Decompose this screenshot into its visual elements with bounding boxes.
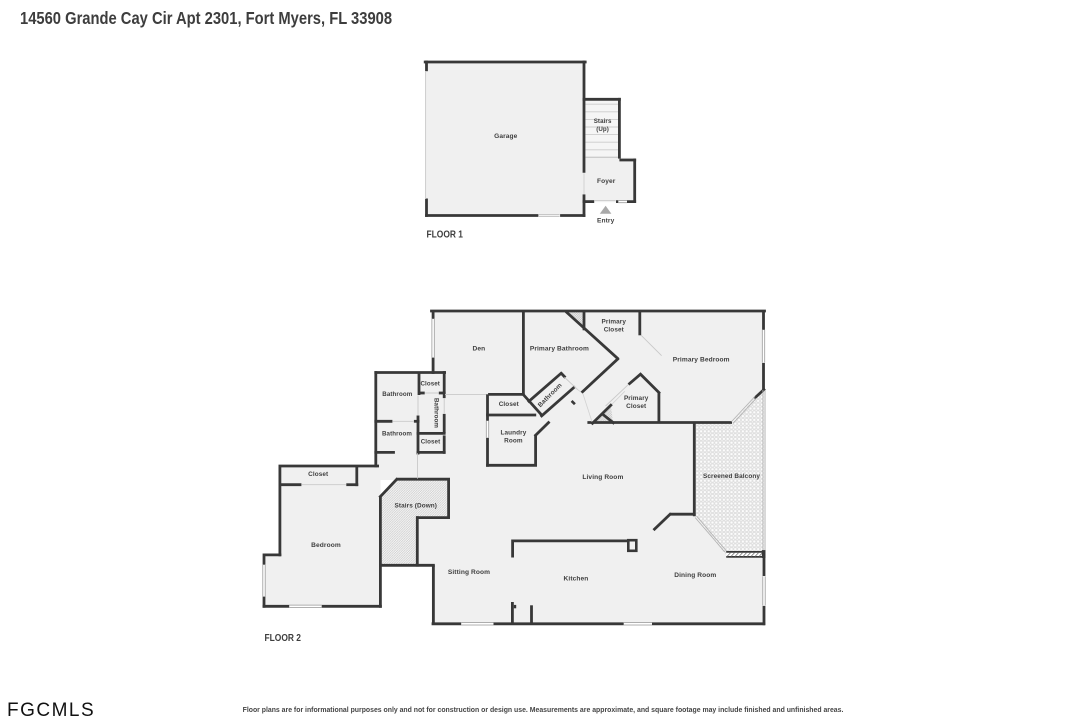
svg-text:Stairs (Down): Stairs (Down): [395, 503, 438, 510]
svg-text:Screened Balcony: Screened Balcony: [703, 473, 760, 480]
svg-text:Closet: Closet: [421, 439, 441, 446]
svg-text:Living Room: Living Room: [582, 474, 623, 481]
svg-text:Closet: Closet: [420, 380, 440, 387]
svg-text:Primary: Primary: [602, 319, 627, 326]
svg-text:FLOOR 2: FLOOR 2: [265, 633, 302, 644]
svg-text:FLOOR 1: FLOOR 1: [427, 230, 464, 241]
svg-text:Bathroom: Bathroom: [382, 391, 412, 398]
svg-text:Closet: Closet: [604, 327, 625, 334]
svg-text:Room: Room: [504, 438, 523, 445]
svg-text:(Up): (Up): [596, 126, 609, 133]
svg-text:Entry: Entry: [597, 218, 615, 225]
svg-text:Bathroom: Bathroom: [432, 398, 439, 428]
svg-text:Primary Bedroom: Primary Bedroom: [673, 356, 730, 363]
svg-text:Closet: Closet: [308, 471, 329, 478]
svg-text:Den: Den: [473, 345, 486, 352]
svg-text:Kitchen: Kitchen: [564, 575, 589, 582]
svg-text:Stairs: Stairs: [594, 118, 612, 125]
svg-text:Bathroom: Bathroom: [382, 431, 412, 438]
svg-text:Bedroom: Bedroom: [311, 542, 341, 549]
svg-text:Garage: Garage: [494, 133, 518, 140]
svg-text:Closet: Closet: [626, 403, 647, 410]
svg-text:Primary: Primary: [624, 395, 649, 402]
svg-text:Primary Bathroom: Primary Bathroom: [530, 346, 589, 353]
svg-text:Foyer: Foyer: [597, 178, 616, 185]
svg-text:Sitting Room: Sitting Room: [448, 569, 490, 576]
svg-text:Laundry: Laundry: [500, 430, 526, 437]
svg-text:Dining Room: Dining Room: [674, 572, 716, 579]
svg-text:Closet: Closet: [499, 401, 520, 408]
